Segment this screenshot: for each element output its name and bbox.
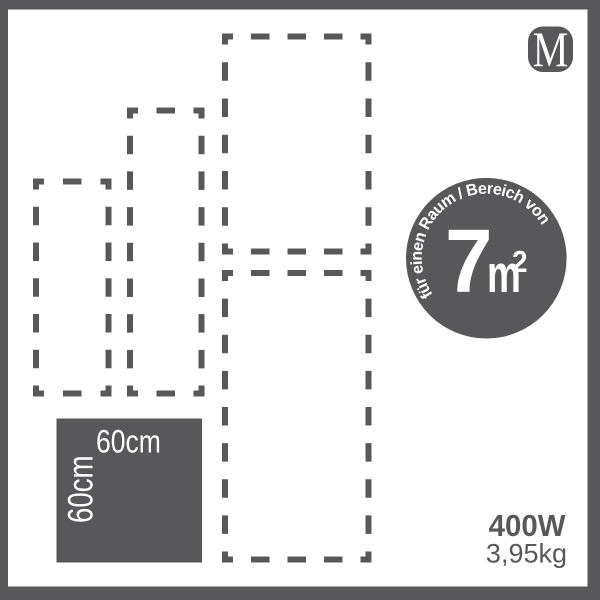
svg-text:2: 2 <box>512 245 528 280</box>
svg-text:M: M <box>533 22 569 77</box>
svg-text:3,95kg: 3,95kg <box>486 539 567 569</box>
svg-text:60cm: 60cm <box>60 455 100 523</box>
svg-text:7: 7 <box>445 211 493 311</box>
svg-text:60cm: 60cm <box>96 424 161 460</box>
